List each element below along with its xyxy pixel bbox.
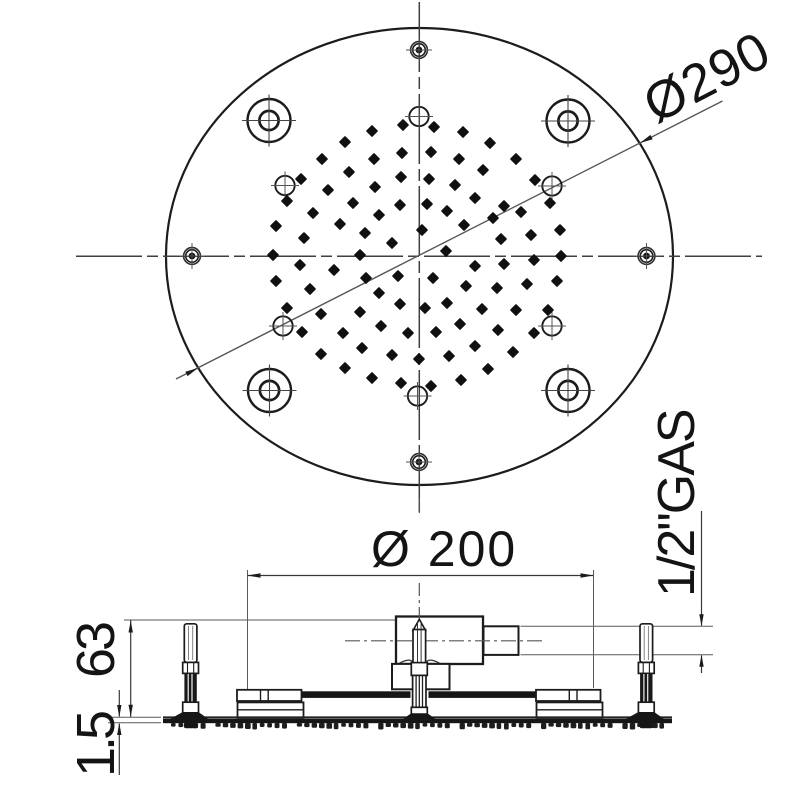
svg-text:1.5: 1.5	[66, 712, 126, 777]
svg-text:Ø 200: Ø 200	[371, 521, 517, 577]
svg-text:63: 63	[66, 623, 126, 678]
svg-text:1/2"GAS: 1/2"GAS	[648, 410, 706, 597]
